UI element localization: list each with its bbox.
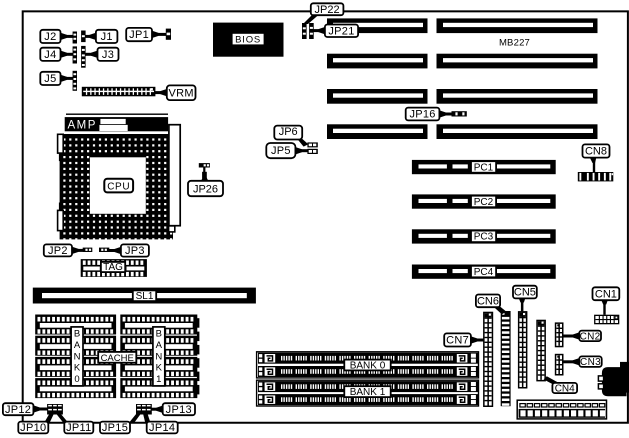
svg-text:B: B <box>156 329 162 340</box>
svg-text:TAG: TAG <box>103 262 123 273</box>
svg-text:BANK 1: BANK 1 <box>350 387 386 398</box>
svg-text:JP14: JP14 <box>149 422 175 434</box>
svg-text:CN1: CN1 <box>595 288 617 300</box>
svg-text:B: B <box>74 329 80 340</box>
svg-text:CACHE: CACHE <box>101 353 134 364</box>
svg-text:VRM: VRM <box>169 87 194 99</box>
svg-text:J5: J5 <box>44 73 56 85</box>
svg-text:J2: J2 <box>44 31 56 43</box>
svg-text:BIOS: BIOS <box>235 35 261 46</box>
svg-text:CN3: CN3 <box>580 357 601 368</box>
svg-text:JP16: JP16 <box>409 109 435 121</box>
svg-text:N: N <box>155 351 162 362</box>
svg-text:0: 0 <box>74 374 79 385</box>
svg-text:N: N <box>74 351 81 362</box>
svg-text:JP1: JP1 <box>129 29 149 41</box>
svg-text:JP13: JP13 <box>166 404 192 416</box>
svg-text:CN4: CN4 <box>555 383 575 394</box>
svg-text:PC3: PC3 <box>474 232 494 243</box>
svg-text:CN8: CN8 <box>585 145 607 157</box>
svg-text:JP3: JP3 <box>125 245 145 257</box>
svg-text:JP15: JP15 <box>102 422 128 434</box>
svg-text:PC2: PC2 <box>474 197 494 208</box>
svg-text:JP11: JP11 <box>66 422 91 434</box>
svg-text:A: A <box>156 340 163 351</box>
svg-text:CN7: CN7 <box>446 335 469 347</box>
svg-text:CPU: CPU <box>107 182 130 193</box>
svg-text:CN6: CN6 <box>477 295 499 307</box>
svg-text:PC4: PC4 <box>474 267 494 278</box>
svg-text:A: A <box>74 340 81 351</box>
svg-text:JP21: JP21 <box>328 25 354 37</box>
svg-text:JP22: JP22 <box>315 4 340 16</box>
svg-text:CN2: CN2 <box>580 332 601 343</box>
svg-text:K: K <box>74 363 81 374</box>
svg-text:J1: J1 <box>101 31 113 43</box>
svg-text:K: K <box>156 363 163 374</box>
svg-text:CN5: CN5 <box>514 287 536 299</box>
svg-text:J4: J4 <box>44 49 56 61</box>
svg-text:JP12: JP12 <box>5 404 31 416</box>
svg-text:1: 1 <box>156 374 161 385</box>
svg-text:JP26: JP26 <box>193 183 218 195</box>
svg-text:J3: J3 <box>102 49 114 61</box>
svg-text:JP6: JP6 <box>279 126 298 138</box>
svg-text:BANK 0: BANK 0 <box>350 361 386 372</box>
svg-text:PC1: PC1 <box>474 162 494 173</box>
svg-text:SL1: SL1 <box>136 291 154 302</box>
svg-text:MB227: MB227 <box>499 38 530 49</box>
svg-text:JP5: JP5 <box>271 145 291 157</box>
svg-text:AMP: AMP <box>68 120 97 132</box>
svg-text:JP2: JP2 <box>48 245 68 257</box>
svg-text:JP10: JP10 <box>20 422 46 434</box>
